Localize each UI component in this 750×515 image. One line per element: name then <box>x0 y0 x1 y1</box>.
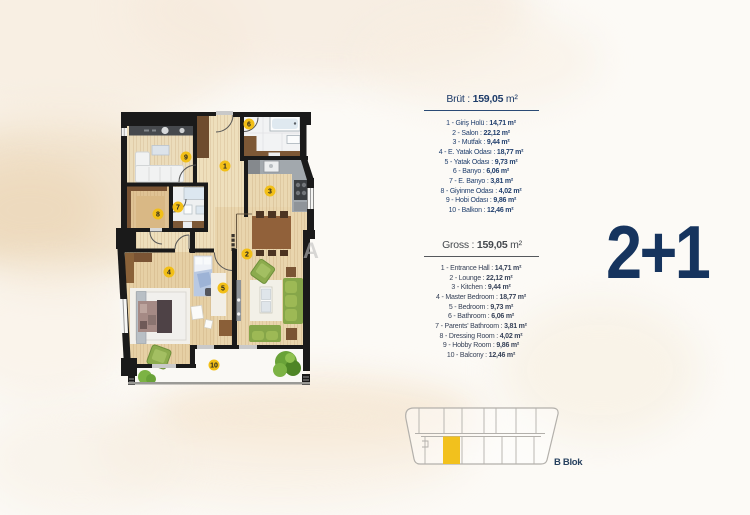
svg-text:5: 5 <box>221 286 225 293</box>
svg-text:9: 9 <box>184 155 188 162</box>
svg-text:6: 6 <box>247 122 251 129</box>
svg-text:A: A <box>303 238 319 263</box>
svg-text:8: 8 <box>156 212 160 219</box>
svg-text:2: 2 <box>245 252 249 259</box>
svg-text:4: 4 <box>167 270 171 277</box>
svg-text:7: 7 <box>176 205 180 212</box>
svg-text:1: 1 <box>223 164 227 171</box>
svg-text:10: 10 <box>210 363 218 370</box>
svg-text:3: 3 <box>268 189 272 196</box>
